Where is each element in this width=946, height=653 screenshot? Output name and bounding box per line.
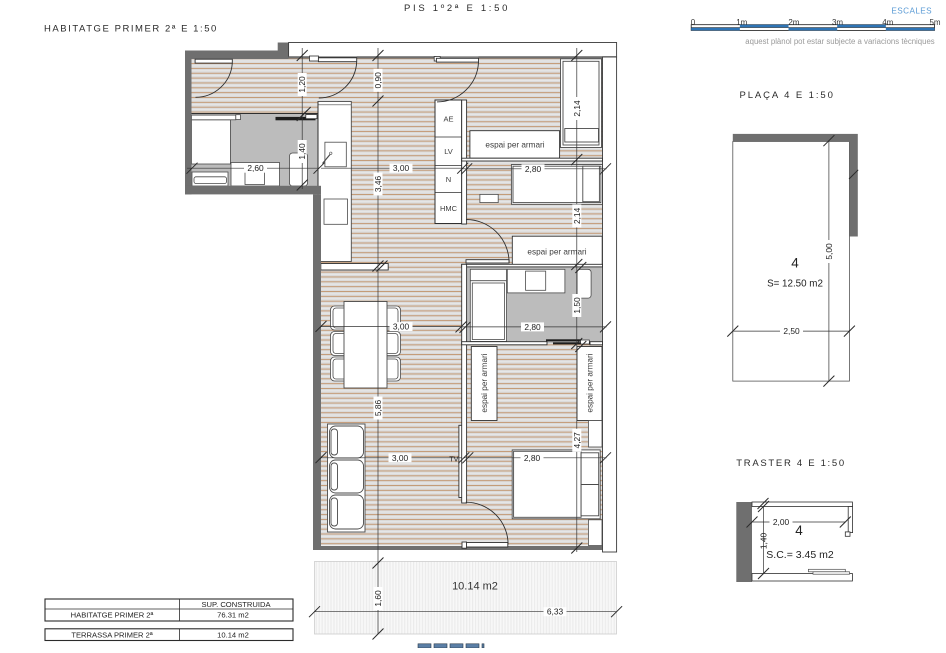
svg-text:1,60: 1,60 — [373, 590, 383, 607]
svg-text:0,90: 0,90 — [373, 72, 383, 89]
svg-text:6,33: 6,33 — [547, 607, 564, 617]
svg-text:10.14 m2: 10.14 m2 — [217, 631, 249, 640]
svg-text:2,14: 2,14 — [572, 207, 582, 224]
svg-text:espai per armari: espai per armari — [527, 248, 586, 257]
svg-text:S.C.= 3.45 m2: S.C.= 3.45 m2 — [766, 549, 834, 561]
svg-text:3,46: 3,46 — [373, 176, 383, 193]
svg-text:1,40: 1,40 — [297, 143, 307, 160]
svg-text:espai per armari: espai per armari — [480, 353, 489, 412]
svg-text:1,20: 1,20 — [297, 76, 307, 93]
svg-text:5,86: 5,86 — [373, 400, 383, 417]
svg-text:N: N — [446, 175, 451, 184]
svg-text:espai per armari: espai per armari — [586, 353, 595, 412]
svg-text:3,00: 3,00 — [393, 163, 410, 173]
svg-text:2,60: 2,60 — [247, 163, 264, 173]
svg-text:ESCALES: ESCALES — [891, 7, 932, 16]
svg-text:2,14: 2,14 — [572, 100, 582, 117]
svg-text:PIS 1º2ª E 1:50: PIS 1º2ª E 1:50 — [404, 3, 510, 14]
svg-text:TERRASSA PRIMER 2ª: TERRASSA PRIMER 2ª — [71, 631, 152, 640]
svg-text:TRASTER 4 E 1:50: TRASTER 4 E 1:50 — [736, 458, 846, 469]
svg-text:TV: TV — [449, 455, 458, 464]
svg-text:4,27: 4,27 — [572, 432, 582, 449]
svg-text:espai per armari: espai per armari — [485, 141, 544, 150]
svg-text:HMC: HMC — [440, 204, 458, 213]
svg-text:SUP. CONSTRUIDA: SUP. CONSTRUIDA — [201, 600, 271, 609]
svg-text:5,00: 5,00 — [824, 243, 834, 260]
svg-text:2,80: 2,80 — [525, 164, 542, 174]
svg-text:2,80: 2,80 — [524, 322, 541, 332]
svg-text:LV: LV — [444, 147, 453, 156]
svg-text:HABITATGE PRIMER 2ª: HABITATGE PRIMER 2ª — [71, 610, 154, 619]
svg-text:2,80: 2,80 — [524, 453, 541, 463]
svg-text:3,00: 3,00 — [392, 453, 409, 463]
svg-text:4: 4 — [791, 256, 799, 271]
svg-text:HABITATGE PRIMER 2ª E 1:50: HABITATGE PRIMER 2ª E 1:50 — [44, 24, 218, 35]
svg-text:aquest plànol pot estar subjec: aquest plànol pot estar subjecte a varia… — [745, 37, 935, 46]
svg-text:2,50: 2,50 — [783, 326, 800, 336]
svg-text:10.14 m2: 10.14 m2 — [452, 581, 498, 593]
svg-text:1,50: 1,50 — [572, 297, 582, 314]
svg-text:76.31 m2: 76.31 m2 — [217, 610, 249, 619]
svg-text:4: 4 — [795, 523, 803, 538]
svg-text:PLAÇA 4 E 1:50: PLAÇA 4 E 1:50 — [740, 90, 835, 101]
svg-text:2,00: 2,00 — [773, 517, 790, 527]
svg-text:3,00: 3,00 — [393, 322, 410, 332]
svg-text:AE: AE — [443, 115, 453, 124]
svg-text:1,40: 1,40 — [759, 533, 769, 550]
svg-text:S= 12.50 m2: S= 12.50 m2 — [767, 279, 823, 290]
